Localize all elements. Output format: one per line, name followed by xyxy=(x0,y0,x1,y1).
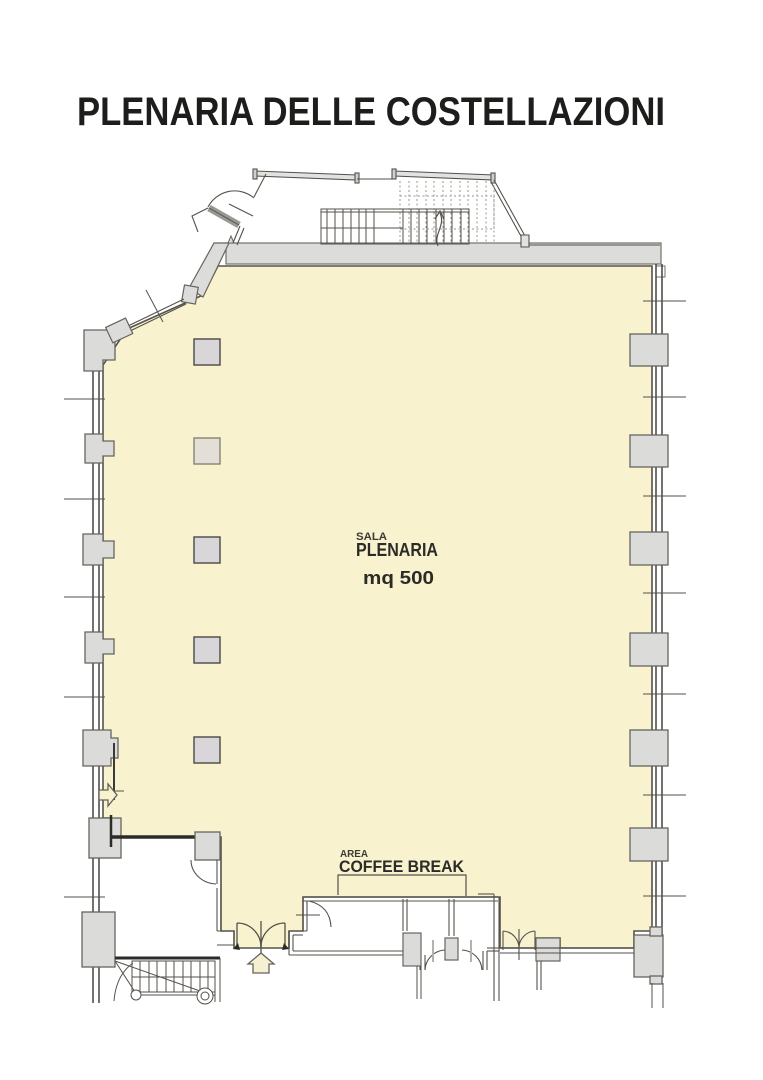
svg-text:COFFEE BREAK: COFFEE BREAK xyxy=(339,857,465,876)
svg-text:PLENARIA: PLENARIA xyxy=(356,540,438,560)
svg-text:mq 500: mq 500 xyxy=(363,568,434,588)
svg-text:PLENARIA DELLE COSTELLAZIONI: PLENARIA DELLE COSTELLAZIONI xyxy=(77,90,665,134)
